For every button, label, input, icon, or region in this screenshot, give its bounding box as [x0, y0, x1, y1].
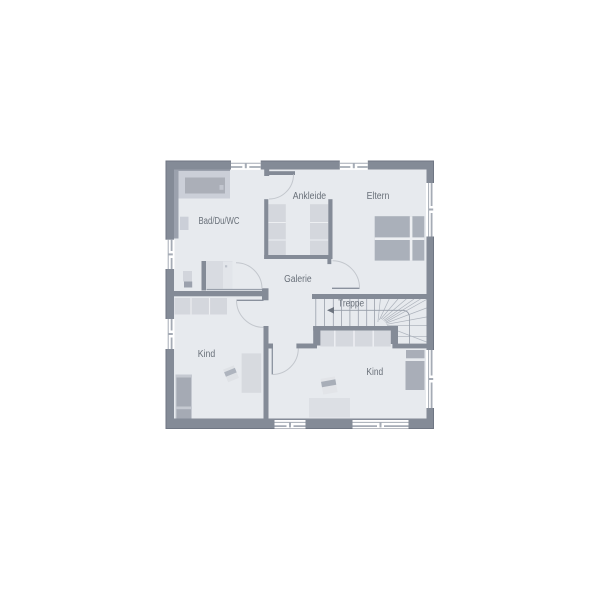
- svg-text:Ankleide: Ankleide: [293, 191, 327, 202]
- svg-text:Kind: Kind: [198, 349, 215, 360]
- svg-text:Treppe: Treppe: [338, 299, 364, 310]
- svg-text:Bad/Du/WC: Bad/Du/WC: [199, 216, 240, 227]
- svg-text:Galerie: Galerie: [284, 274, 312, 285]
- svg-text:Eltern: Eltern: [367, 191, 390, 202]
- svg-text:Kind: Kind: [366, 367, 383, 378]
